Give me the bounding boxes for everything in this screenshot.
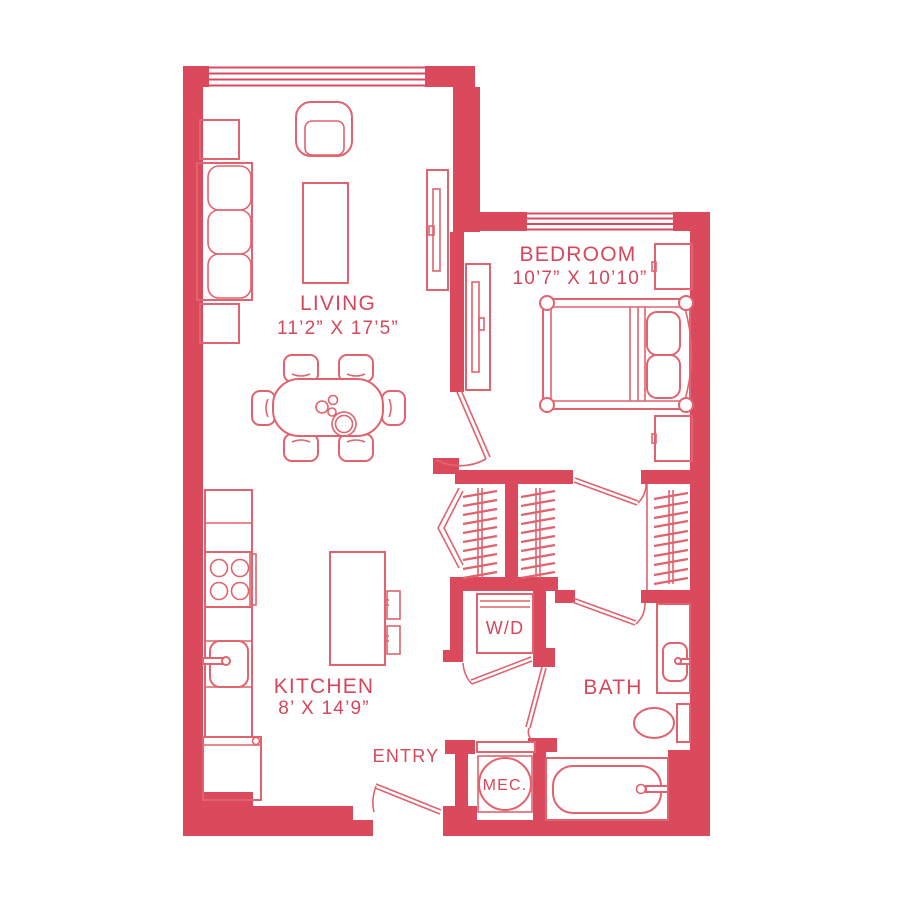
sofa	[197, 163, 252, 300]
dining-chair	[339, 355, 373, 382]
closet-mid	[521, 488, 555, 578]
mec-door	[477, 742, 535, 752]
living-dims: 11’2” X 17’5”	[277, 318, 399, 339]
wall-closet-top-right	[641, 470, 710, 484]
nightstand-top	[652, 244, 692, 289]
floor-plan-page: LIVING 11’2” X 17’5” BEDROOM 10’7” X 10’…	[0, 0, 900, 900]
dining-chair	[252, 391, 275, 425]
kitchen-fixtures	[203, 490, 400, 800]
living-window	[209, 66, 425, 87]
wall-bath-right-block	[668, 750, 710, 836]
closet-left-hangers	[463, 491, 497, 578]
bedroom-dims: 10’7” X 10’10”	[512, 268, 647, 289]
wall-living-right-lower	[450, 232, 464, 392]
kitchen-label: KITCHEN	[274, 675, 375, 698]
laundry-label: W/D	[486, 618, 525, 638]
pillow	[647, 312, 680, 355]
closet-bedroom	[647, 484, 688, 590]
closet-bedroom-hangers	[654, 493, 688, 584]
kitchen-counter	[205, 490, 252, 737]
island-stool	[387, 626, 400, 654]
wall-living-right-upper	[453, 87, 480, 232]
closet-mid-rod	[536, 488, 540, 578]
wall-bath-west-stub	[533, 648, 555, 667]
armchair	[296, 102, 352, 156]
bathtub	[546, 758, 668, 820]
wall-left	[183, 66, 203, 836]
bath-fixtures	[546, 604, 690, 820]
mechanical-label: MEC.	[483, 777, 528, 794]
closet-mid-hangers	[521, 491, 555, 578]
windows	[209, 66, 673, 231]
bath-door-north	[572, 598, 645, 625]
bedroom-media-dresser	[466, 264, 490, 390]
closet-left-rod	[478, 488, 482, 578]
walls	[183, 66, 710, 836]
dining-chair	[284, 355, 318, 382]
dining-chair	[339, 434, 373, 461]
closet-left	[463, 488, 497, 578]
end-table-top	[200, 120, 239, 159]
wall-closet-mid	[505, 470, 518, 591]
bedroom-window	[527, 212, 673, 231]
dining-chair	[284, 434, 318, 461]
kitchen-dims: 8’ X 14’9”	[278, 698, 370, 719]
floor-plan: LIVING 11’2” X 17’5” BEDROOM 10’7” X 10’…	[0, 0, 900, 900]
stove	[205, 552, 256, 607]
dining-set	[252, 355, 405, 461]
entry-opening	[373, 804, 443, 836]
end-table-bottom	[200, 304, 239, 343]
kitchen-island	[330, 552, 400, 665]
tv-console	[427, 170, 448, 290]
wall-vestibule-stub	[555, 590, 575, 603]
wall-bottom	[183, 820, 710, 836]
pillow	[647, 355, 680, 398]
coffee-table	[303, 183, 348, 283]
living-label: LIVING	[300, 292, 376, 315]
closet-bifold-door	[438, 488, 463, 568]
refrigerator	[203, 737, 261, 800]
living-hall-door	[436, 390, 490, 466]
wall-wd-left-stub	[443, 650, 463, 662]
toilet	[634, 704, 690, 742]
wall-bath-top	[641, 590, 710, 603]
closets	[463, 484, 688, 590]
wall-wd-left	[450, 577, 463, 662]
vanity	[657, 604, 690, 693]
bed	[540, 296, 693, 412]
laundry-door	[463, 657, 532, 684]
bedroom-door	[574, 478, 646, 505]
bath-door-west	[526, 667, 546, 739]
wall-bottom-raise-left	[253, 806, 353, 822]
nightstand-bottom	[652, 416, 692, 461]
entry-label: ENTRY	[373, 746, 440, 766]
kitchen-sink	[203, 641, 248, 687]
bedroom-label: BEDROOM	[520, 243, 637, 266]
dining-chair	[382, 391, 405, 425]
bath-label: BATH	[583, 676, 642, 699]
wall-mec-left-stub	[445, 740, 475, 754]
